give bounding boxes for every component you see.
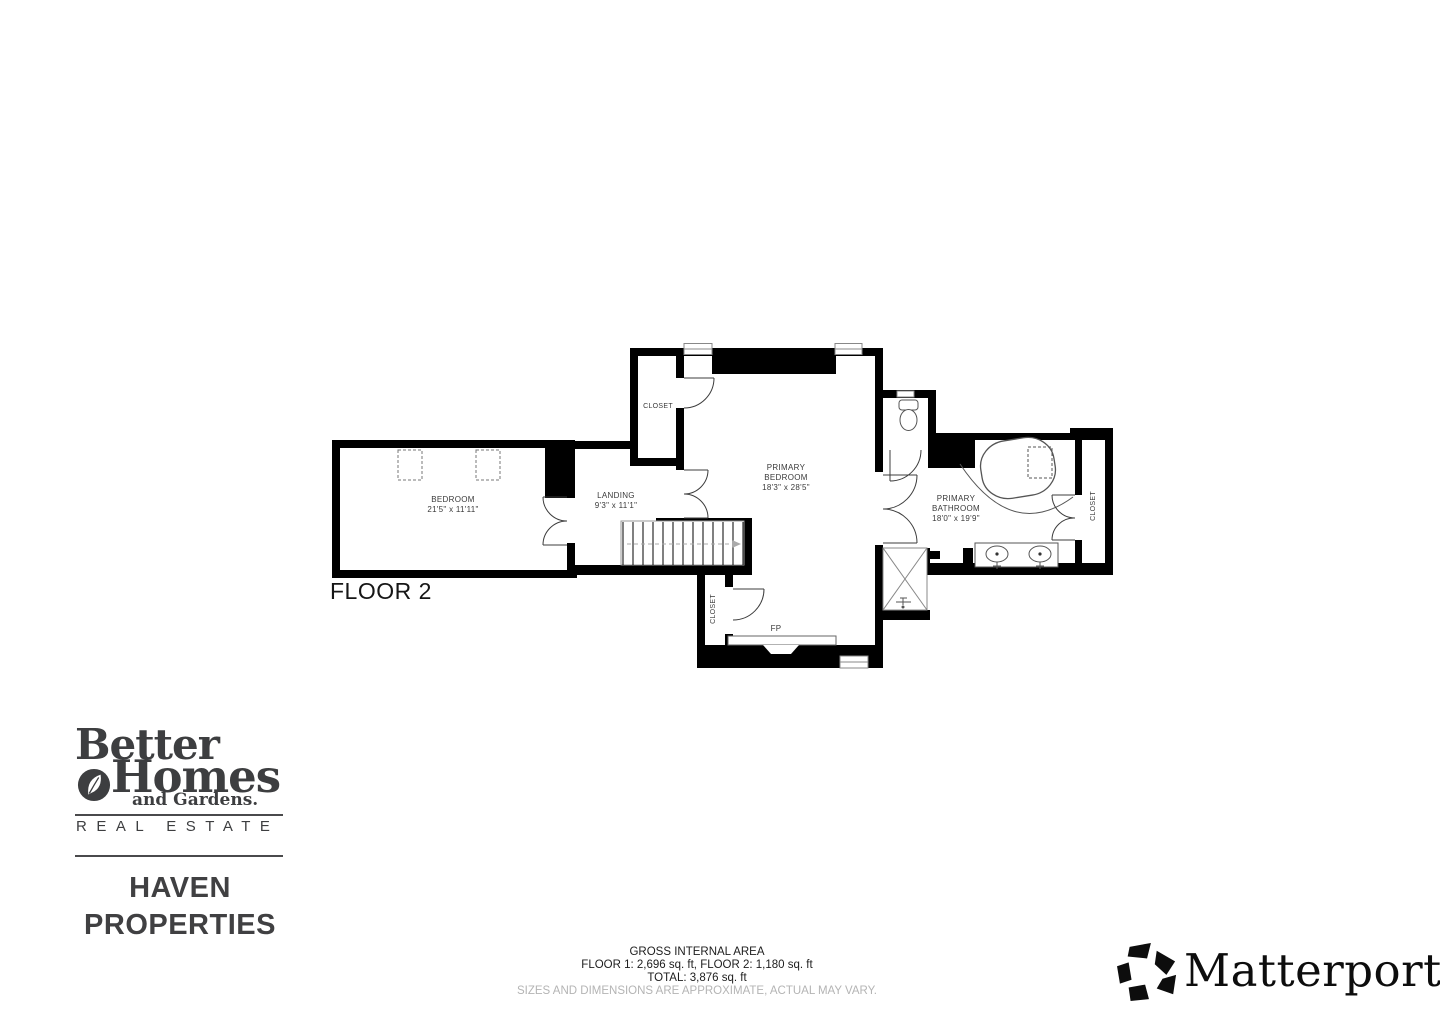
matterport-wordmark: Matterport®: [1184, 944, 1440, 997]
floor-title: FLOOR 2: [330, 578, 432, 605]
leaf-icon: [77, 768, 111, 802]
room-label-landing: LANDING 9'3" x 11'1": [595, 491, 637, 511]
total-area: TOTAL: 3,876 sq. ft: [517, 972, 877, 985]
stairs: [621, 521, 744, 565]
matterport-pinwheel-icon: [1116, 942, 1180, 1002]
room-dims: 18'3" x 28'5": [762, 483, 810, 493]
agency-name-line2: PROPERTIES: [75, 909, 285, 942]
disclaimer: SIZES AND DIMENSIONS ARE APPROXIMATE, AC…: [517, 985, 877, 998]
fireplace-label: FP: [771, 624, 782, 634]
divider-line: [75, 855, 283, 857]
agency-name-line1: HAVEN: [75, 872, 285, 905]
room-label-primary-bathroom: PRIMARY BATHROOM 18'0" x 19'9": [932, 494, 980, 524]
closet-top-label: CLOSET: [643, 402, 673, 412]
room-name: PRIMARY: [762, 463, 810, 473]
area-summary: GROSS INTERNAL AREA FLOOR 1: 2,696 sq. f…: [517, 946, 877, 998]
room-dims: 21'5" x 11'11": [427, 505, 478, 515]
room-name: PRIMARY: [932, 494, 980, 504]
room-name: LANDING: [595, 491, 637, 501]
gross-internal-area-title: GROSS INTERNAL AREA: [517, 946, 877, 959]
floorplan-page: { "plan": { "floor_label": "FLOOR 2", "r…: [0, 0, 1440, 1018]
room-name: BEDROOM: [427, 495, 478, 505]
room-label-primary-bedroom: PRIMARY BEDROOM 18'3" x 28'5": [762, 463, 810, 493]
room-label-bedroom: BEDROOM 21'5" x 11'11": [427, 495, 478, 515]
divider-line: [75, 814, 283, 816]
room-name: BEDROOM: [762, 473, 810, 483]
floor-areas: FLOOR 1: 2,696 sq. ft, FLOOR 2: 1,180 sq…: [517, 959, 877, 972]
shower-icon: [883, 548, 927, 610]
logo-word-and-gardens: and Gardens.: [132, 790, 258, 810]
closet-right-label: CLOSET: [1089, 491, 1099, 521]
room-dims: 9'3" x 11'1": [595, 501, 637, 511]
skylights: [398, 450, 500, 480]
closet-bottom-label: CLOSET: [709, 594, 719, 624]
room-dims: 18'0" x 19'9": [932, 514, 980, 524]
matterport-name: Matterport: [1184, 944, 1440, 997]
toilet-icon: [899, 400, 918, 431]
vanity-sinks-icon: [975, 543, 1058, 569]
better-homes-gardens-logo: Better Homes and Gardens. REAL ESTATE HA…: [75, 726, 285, 956]
room-name: BATHROOM: [932, 504, 980, 514]
logo-real-estate: REAL ESTATE: [76, 818, 279, 835]
